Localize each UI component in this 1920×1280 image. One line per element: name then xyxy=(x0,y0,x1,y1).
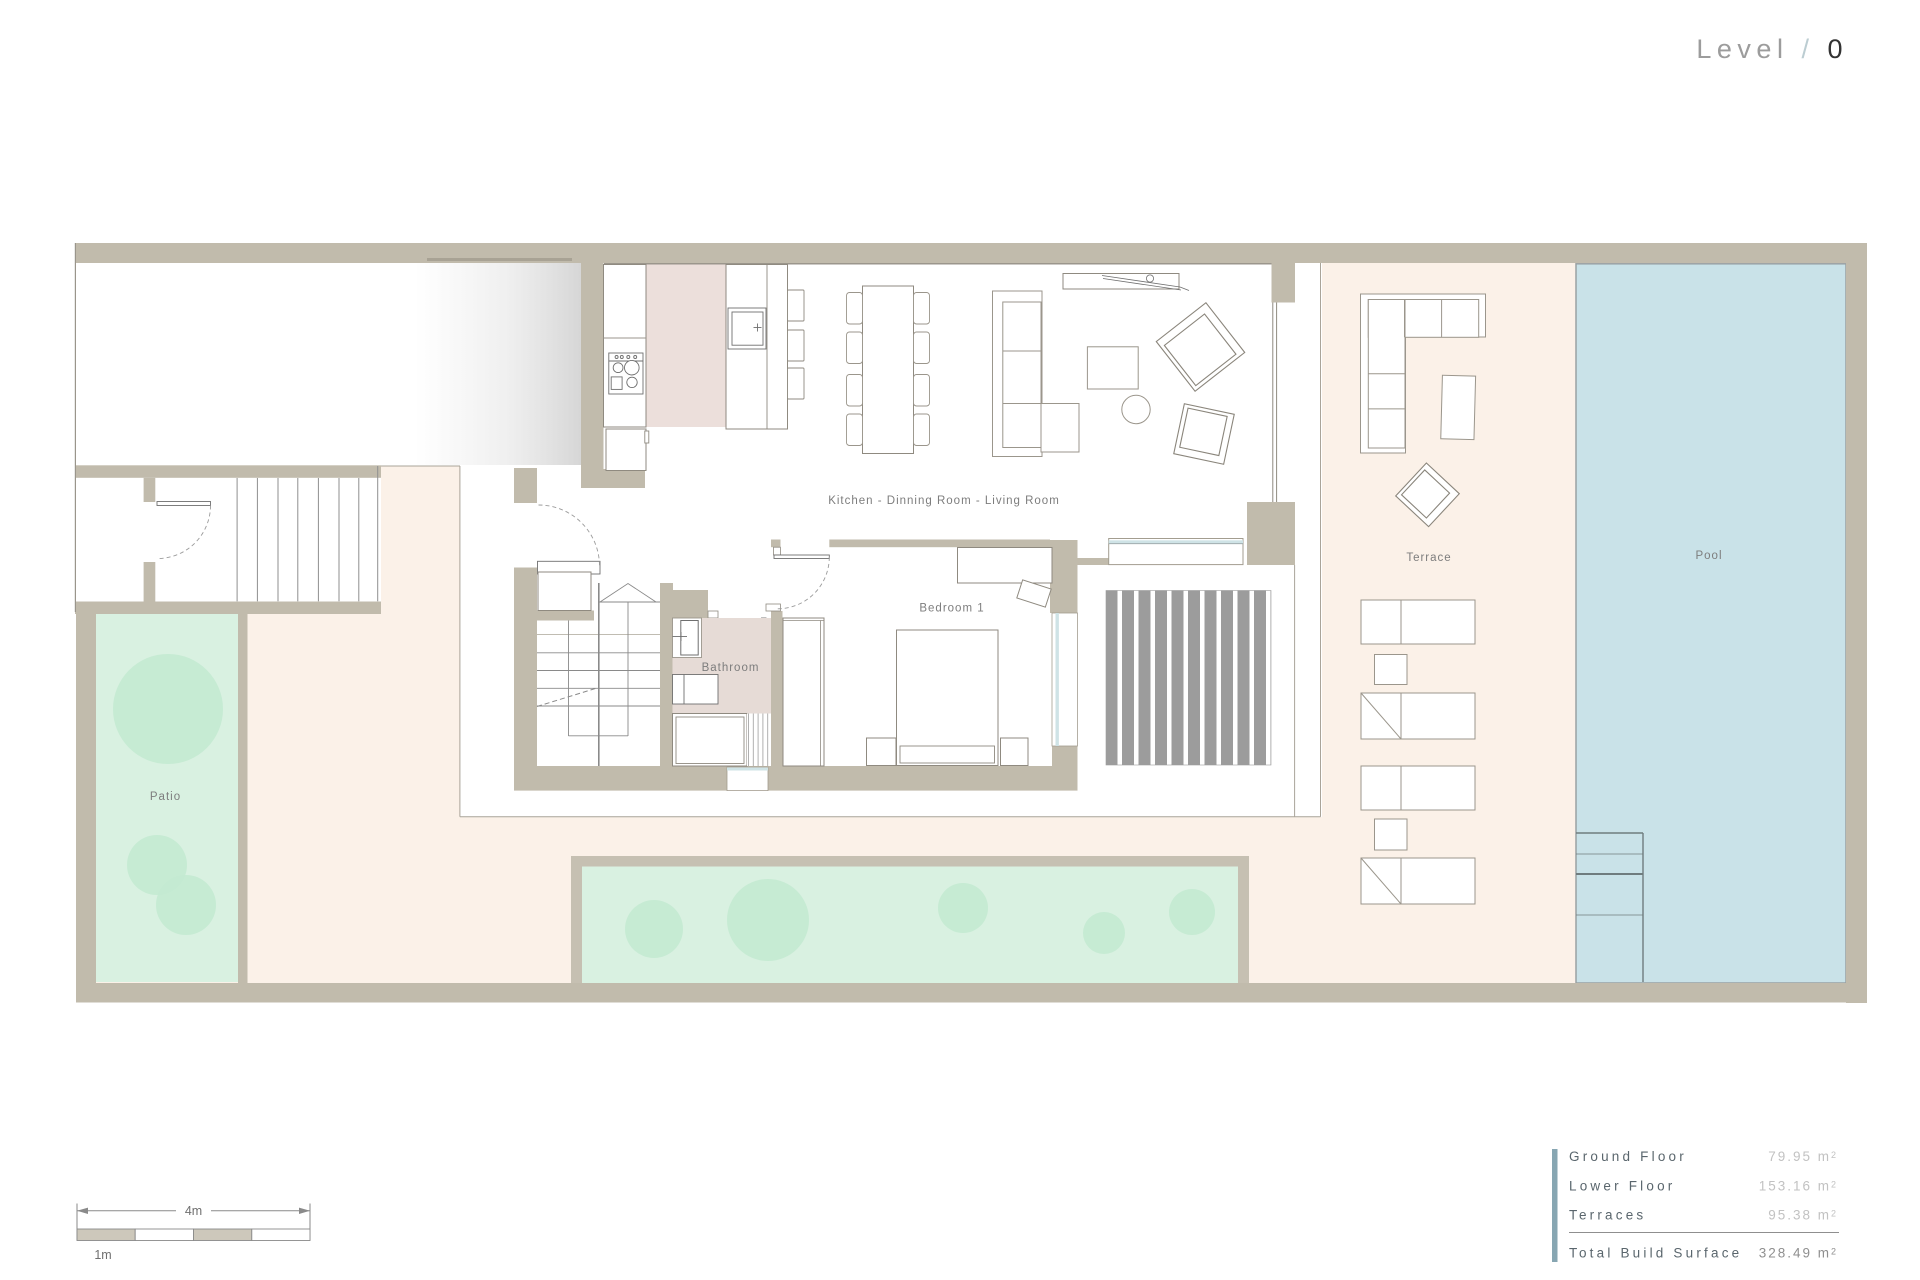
svg-text:1m: 1m xyxy=(94,1248,111,1262)
svg-text:4m: 4m xyxy=(185,1204,202,1218)
svg-text:Terrace: Terrace xyxy=(1406,552,1451,564)
svg-text:Ground Floor: Ground Floor xyxy=(1569,1149,1687,1164)
svg-text:Bathroom: Bathroom xyxy=(702,662,760,674)
svg-text:Lower Floor: Lower Floor xyxy=(1569,1179,1675,1194)
svg-text:Pool: Pool xyxy=(1695,550,1722,562)
svg-text:Kitchen - Dinning Room - Livin: Kitchen - Dinning Room - Living Room xyxy=(828,495,1060,507)
svg-text:Patio: Patio xyxy=(150,791,181,803)
svg-text:Terraces: Terraces xyxy=(1569,1208,1646,1223)
svg-text:95.38 m2: 95.38 m2 xyxy=(1768,1208,1838,1223)
svg-text:153.16 m2: 153.16 m2 xyxy=(1759,1179,1838,1194)
svg-text:Bedroom 1: Bedroom 1 xyxy=(919,603,984,615)
svg-text:79.95 m2: 79.95 m2 xyxy=(1768,1149,1838,1164)
svg-text:Level / 0: Level / 0 xyxy=(1696,34,1848,64)
svg-text:328.49 m2: 328.49 m2 xyxy=(1759,1246,1838,1261)
svg-text:Total Build Surface: Total Build Surface xyxy=(1569,1246,1742,1261)
